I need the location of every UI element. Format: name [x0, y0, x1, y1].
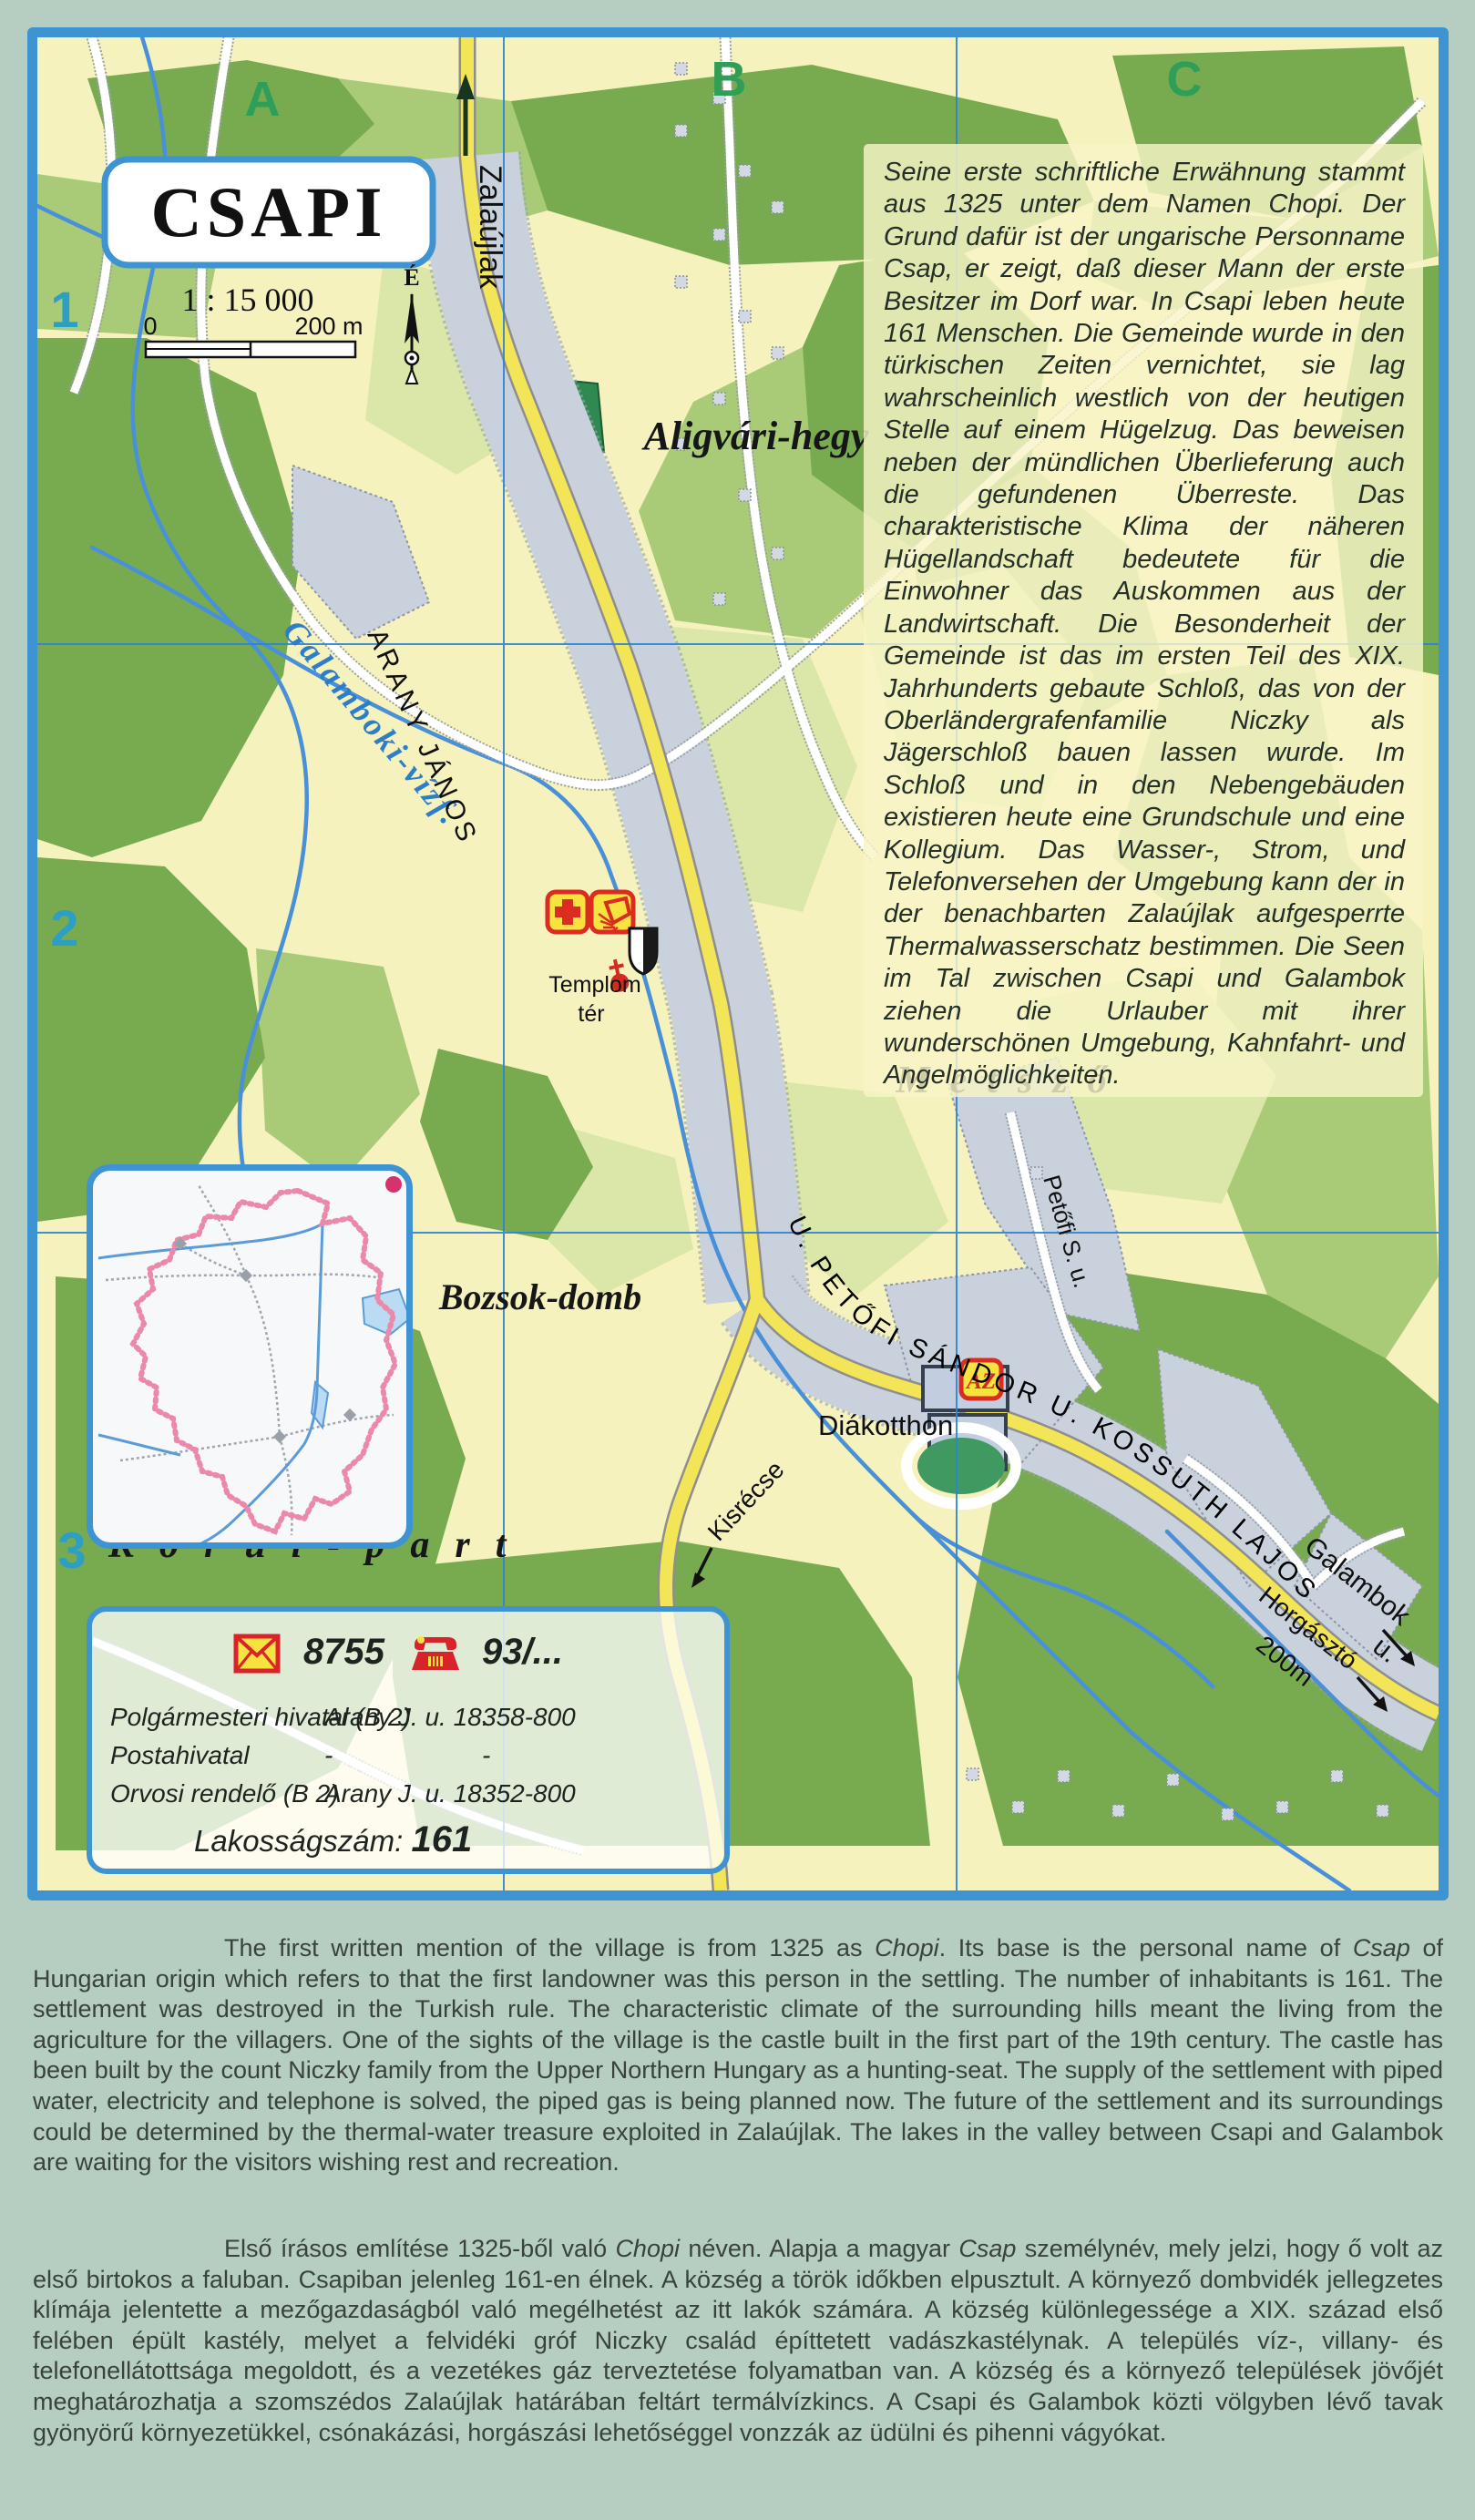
inset-artwork — [93, 1171, 406, 1542]
population-row: Lakosságszám: 161 — [194, 1819, 472, 1860]
phone-icon — [409, 1632, 462, 1674]
envelope-icon — [233, 1634, 281, 1674]
inset-roads — [106, 1185, 394, 1535]
label-templom-ter: tér — [578, 1001, 604, 1027]
info-row-phone: - — [482, 1741, 490, 1770]
grid-row-3: 3 — [57, 1521, 86, 1579]
grid-col-c: C — [1167, 52, 1203, 107]
info-box: 8755 93/... Polgármesteri hivatal (B 2) … — [87, 1606, 730, 1874]
info-row-address: - — [324, 1741, 333, 1770]
paragraph-hungarian: Első írásos említése 1325-ből való Chopi… — [33, 2234, 1443, 2448]
inset-rivers — [98, 1224, 323, 1542]
grid-row-2: 2 — [50, 899, 78, 957]
label-diakotthon: Diákotthon — [818, 1409, 953, 1441]
inset-village-dot — [385, 1176, 402, 1193]
hungarian-text: Első írásos említése 1325-ből való Chopi… — [33, 2234, 1443, 2448]
label-bozsok-domb: Bozsok-domb — [438, 1276, 641, 1317]
inset-locator-map — [87, 1164, 413, 1549]
inset-boundary — [133, 1191, 395, 1531]
inset-settlement-markers — [174, 1237, 356, 1443]
scale-end-label: 200 m — [294, 312, 363, 340]
grid-col-b: B — [712, 52, 747, 107]
coat-of-arms-icon — [630, 928, 657, 974]
paragraph-english: The first written mention of the village… — [33, 1933, 1443, 2178]
title-box: CSAPI — [105, 159, 433, 265]
postcode-value: 8755 — [303, 1632, 384, 1673]
german-description-panel: Seine erste schriftliche Erwähnung stamm… — [864, 144, 1423, 1097]
population-label: Lakosságszám: — [194, 1824, 403, 1858]
label-aligvari-hegy: Aligvári-hegy — [641, 414, 869, 458]
phone-prefix-value: 93/... — [482, 1632, 563, 1673]
town-map-panel: AZ CSAPI 1 : 15 000 0 200 m É A B C 1 2 — [27, 27, 1449, 1900]
north-letter: É — [404, 264, 419, 291]
english-text: The first written mention of the village… — [33, 1933, 1443, 2178]
population-value: 161 — [411, 1819, 472, 1859]
info-row-phone: 358-800 — [482, 1703, 576, 1732]
map-title: CSAPI — [150, 172, 386, 251]
info-row-name: Postahivatal — [110, 1741, 250, 1770]
label-zalaujlak: Zalaújlak — [473, 165, 507, 290]
info-row-address: Arany J. u. 18. — [324, 1779, 489, 1808]
spring-icon — [591, 892, 633, 933]
red-cross-icon — [548, 892, 588, 932]
info-row-address: Arany J. u. 18. — [324, 1703, 489, 1732]
scale-zero-label: 0 — [143, 312, 157, 340]
grid-col-a: A — [245, 72, 281, 127]
page: { "map": { "title": "CSAPI", "scale_text… — [0, 0, 1475, 2520]
grid-row-1: 1 — [50, 281, 78, 338]
info-row-phone: 352-800 — [482, 1779, 576, 1808]
info-row-name: Orvosi rendelő (B 2) — [110, 1779, 339, 1808]
german-description-text: Seine erste schriftliche Erwähnung stamm… — [884, 158, 1405, 1090]
label-templom: Templom — [548, 972, 640, 998]
